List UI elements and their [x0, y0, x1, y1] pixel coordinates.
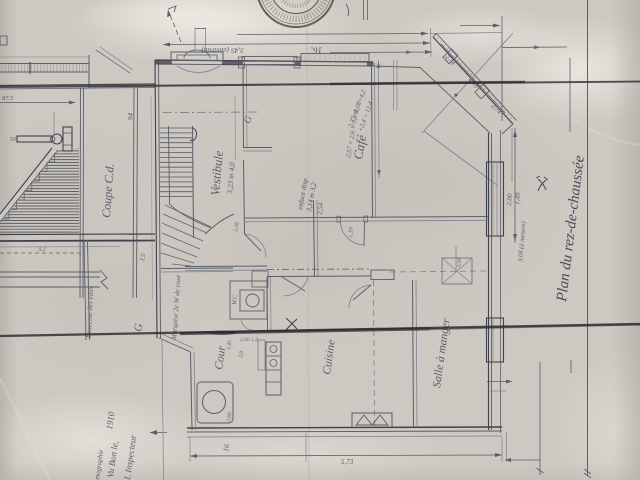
svg-text:5,73: 5,73	[341, 458, 354, 466]
svg-text:1,49: 1,49	[513, 192, 522, 205]
svg-text:2,00: 2,00	[505, 193, 514, 206]
svg-text:3,45 (environ): 3,45 (environ)	[201, 46, 245, 55]
svg-text:1,10: 1,10	[348, 227, 355, 238]
svg-text:94: 94	[127, 113, 135, 121]
svg-text:16,: 16,	[311, 45, 323, 55]
svg-text:W.C: W.C	[232, 294, 239, 305]
svg-text:2,54: 2,54	[316, 202, 325, 215]
svg-text:87.5: 87.5	[2, 95, 14, 102]
svg-text:1,45: 1,45	[225, 340, 233, 351]
svg-text:3,50: 3,50	[456, 258, 463, 269]
svg-text:50: 50	[10, 137, 16, 143]
svg-text:2,60 1,4: 2,60 1,4	[240, 336, 258, 343]
svg-text:3.2: 3.2	[37, 247, 46, 253]
svg-text:2,0: 2,0	[238, 350, 245, 358]
